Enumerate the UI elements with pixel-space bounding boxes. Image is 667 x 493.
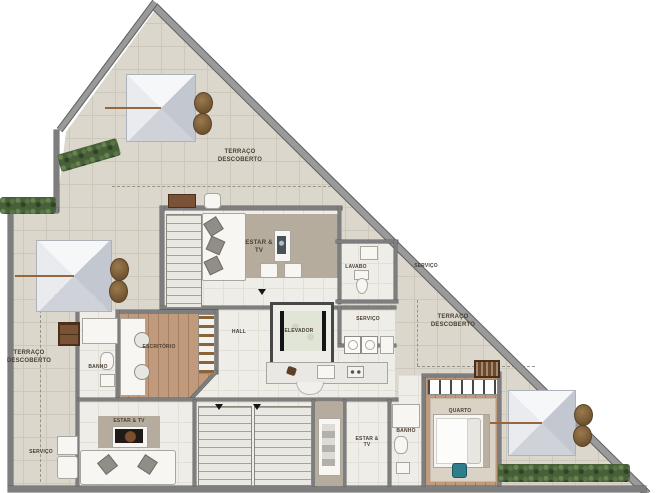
sofa-lower bbox=[80, 450, 176, 485]
plant-left-terrace-b bbox=[109, 280, 128, 303]
lavabo-sink bbox=[360, 246, 378, 260]
towels bbox=[322, 424, 335, 466]
room-label-elevador: ELEVADOR bbox=[279, 328, 319, 334]
wall-lavabo-top bbox=[336, 240, 398, 243]
wall-upper-left bbox=[160, 206, 164, 310]
room-label-terraco-descoberto-right: TERRAÇO DESCOBERTO bbox=[424, 314, 482, 329]
floor-plan: TERRAÇO DESCOBERTO TERRAÇO DESCOBERTO TE… bbox=[0, 0, 667, 493]
sink-upper bbox=[100, 374, 115, 387]
desk-strip bbox=[120, 318, 146, 396]
room-label-lavabo: LAVABO bbox=[339, 264, 373, 270]
dryer bbox=[361, 336, 378, 354]
office-shelf bbox=[198, 314, 215, 374]
tv-screen-upper bbox=[277, 236, 286, 254]
wall-escritorio-top bbox=[116, 310, 218, 313]
blue-bin bbox=[452, 463, 467, 478]
skylight-ridge-beam bbox=[489, 422, 542, 424]
kitchen-sink bbox=[317, 365, 335, 379]
room-label-servico-left: SERVIÇO bbox=[20, 449, 62, 455]
room-label-servico-mid: SERVIÇO bbox=[346, 316, 390, 322]
office-chair-b bbox=[134, 364, 150, 380]
staircase-bottom-right-flight bbox=[254, 406, 312, 486]
staircase-upper bbox=[166, 214, 202, 308]
skylight-bottom-right-terrace bbox=[508, 390, 576, 456]
service-basin-left bbox=[57, 456, 78, 479]
room-label-banho-lower: BANHO bbox=[391, 428, 421, 434]
room-label-hall: HALL bbox=[226, 329, 252, 335]
stair-direction-arrow-upper bbox=[258, 289, 266, 295]
wall-servico-mid-left bbox=[338, 306, 341, 346]
plant-top-terrace-a bbox=[194, 92, 213, 114]
staircase-bottom-left-flight bbox=[198, 406, 252, 486]
bed-headboard bbox=[483, 415, 489, 467]
quarto-wardrobe-clothes bbox=[427, 379, 498, 395]
projection-dashed-line-left-terrace bbox=[40, 310, 41, 482]
sink-lower bbox=[396, 462, 410, 474]
terrace-grill bbox=[204, 193, 221, 209]
wall-quarto-left bbox=[422, 376, 425, 486]
laundry-tub bbox=[380, 336, 394, 354]
shower-lower bbox=[392, 404, 420, 428]
pouf-upper-b bbox=[284, 263, 302, 278]
skylight-ridge-beam bbox=[15, 275, 74, 277]
projection-dashed-line-top bbox=[112, 186, 336, 187]
wall-banho-lower-left bbox=[388, 400, 391, 486]
projection-dashed-line-right-terrace-v bbox=[417, 300, 418, 366]
room-label-estar-tv-lower: ESTAR & TV bbox=[100, 418, 158, 424]
plant-br-terrace-a bbox=[574, 404, 593, 426]
cooktop bbox=[347, 366, 364, 378]
bed-duvet bbox=[436, 418, 468, 464]
washer bbox=[344, 336, 361, 354]
room-label-terraco-descoberto-left: TERRAÇO DESCOBERTO bbox=[4, 350, 54, 365]
wall-escritorio-right bbox=[215, 310, 218, 374]
plant-left-terrace-a bbox=[110, 258, 129, 281]
room-label-terraco-descoberto-top: TERRAÇO DESCOBERTO bbox=[208, 149, 272, 164]
stair-direction-arrow-b1 bbox=[215, 404, 223, 410]
tv-lower bbox=[112, 426, 148, 448]
skylight-left-terrace bbox=[36, 240, 112, 312]
tv-screen-lower bbox=[115, 429, 143, 443]
skylight-top-terrace bbox=[126, 74, 196, 142]
wall-bottom-band-top bbox=[78, 398, 398, 401]
tv-panel-upper bbox=[274, 230, 291, 262]
shower-upper bbox=[82, 318, 118, 344]
plant-br-terrace-b bbox=[573, 425, 592, 447]
skylight-ridge-beam bbox=[105, 107, 161, 109]
room-label-estar-tv-small: ESTAR & TV bbox=[352, 436, 382, 449]
wall-stairs-left bbox=[193, 400, 196, 486]
bed-pillow bbox=[467, 418, 481, 464]
bed bbox=[433, 414, 490, 468]
hedge-left-outside bbox=[0, 197, 56, 214]
room-label-servico-right: SERVIÇO bbox=[406, 263, 446, 269]
room-label-escritorio: ESCRITÓRIO bbox=[130, 344, 188, 350]
plant-top-terrace-b bbox=[193, 113, 212, 135]
wall-upper-right bbox=[338, 206, 341, 304]
wall-lavabo-right bbox=[394, 240, 397, 303]
service-cabinet-terrace bbox=[58, 322, 80, 346]
sideboard-terrace bbox=[168, 194, 196, 208]
room-label-banho-upper: BANHO bbox=[82, 364, 114, 370]
hedge-bottom-right bbox=[498, 464, 630, 482]
outer-wall-bottom bbox=[8, 486, 646, 492]
pouf-upper-a bbox=[260, 263, 278, 278]
wall-art-frame bbox=[474, 360, 500, 378]
toilet-lower bbox=[394, 436, 408, 454]
room-label-estar-tv-upper: ESTAR & TV bbox=[244, 240, 274, 255]
wall-lavabo-bottom bbox=[336, 300, 398, 303]
room-label-quarto: QUARTO bbox=[438, 408, 482, 414]
stair-direction-arrow-b2 bbox=[253, 404, 261, 410]
wall-estar-small-left bbox=[343, 400, 346, 486]
